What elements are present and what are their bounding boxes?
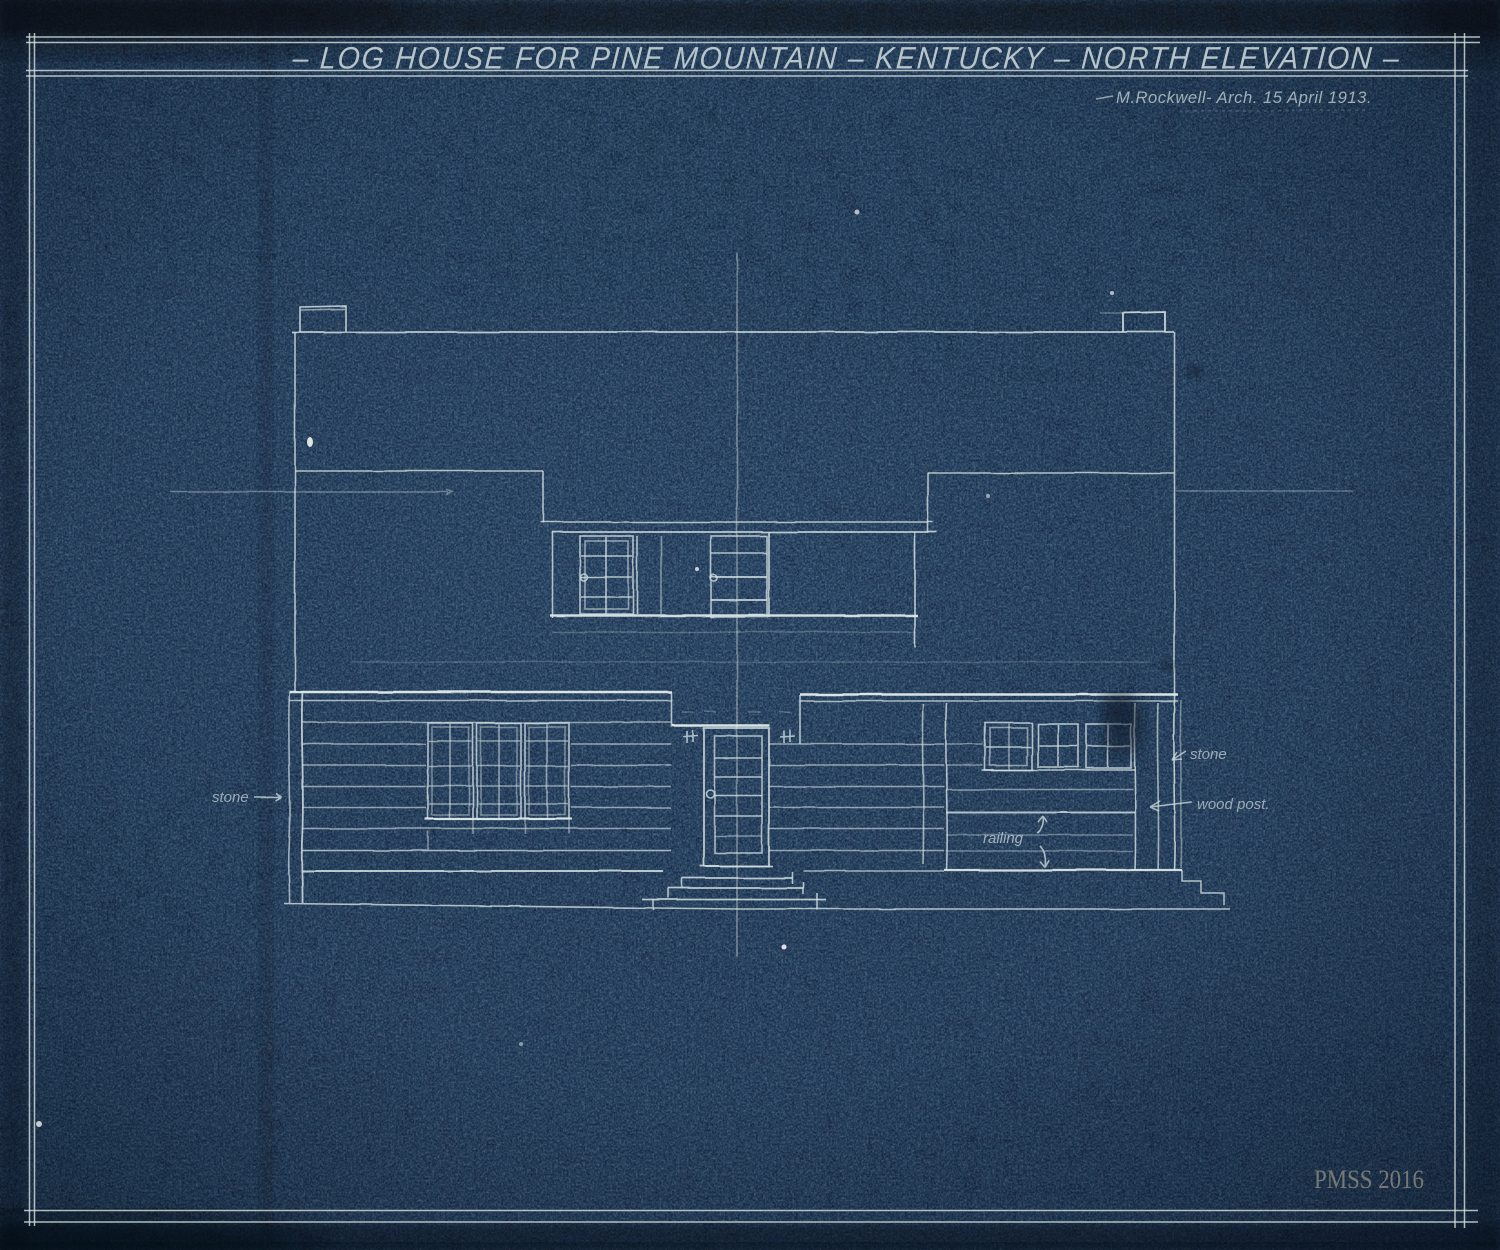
svg-text:M.Rockwell- Arch. 15 April 19: M.Rockwell- Arch. 15 April 1913. (1116, 88, 1372, 107)
svg-text:PMSS 2016: PMSS 2016 (1314, 1165, 1424, 1194)
svg-text:stone: stone (1190, 746, 1227, 763)
svg-text:wood post.: wood post. (1197, 796, 1270, 813)
svg-text:stone: stone (212, 789, 249, 806)
svg-text:railing: railing (983, 830, 1024, 847)
svg-text:– LOG HOUSE FOR PINE MOUNTAIN: – LOG HOUSE FOR PINE MOUNTAIN – KENTUCKY… (291, 41, 1402, 76)
